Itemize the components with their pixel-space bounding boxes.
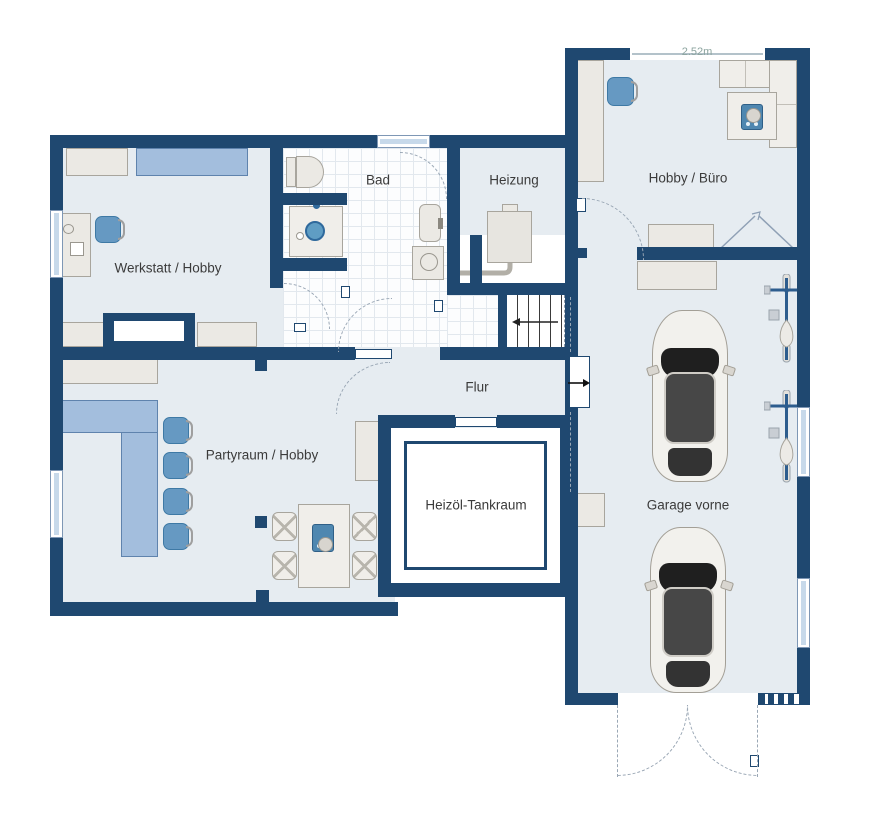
garage-sideboard bbox=[637, 261, 717, 290]
window-glass bbox=[801, 581, 806, 645]
window-glass bbox=[54, 213, 59, 275]
wall-werkstatt-bad bbox=[270, 148, 283, 288]
room-label-flur: Flur bbox=[465, 380, 488, 395]
wall-shower-bottom bbox=[283, 258, 347, 271]
wall-left-exterior bbox=[50, 135, 63, 615]
car-front bbox=[652, 310, 728, 486]
garage-door-dash bbox=[757, 705, 759, 777]
wall-bad-heizung bbox=[447, 135, 460, 295]
wall-stairs-left bbox=[498, 295, 507, 347]
wall-hobby-garage bbox=[637, 247, 797, 260]
window-glass bbox=[801, 410, 806, 474]
wall-top-left-wing bbox=[50, 135, 578, 148]
car-rear bbox=[650, 527, 726, 697]
office-chair bbox=[607, 77, 634, 106]
counter-right bbox=[197, 322, 257, 347]
gate-tick bbox=[788, 694, 794, 704]
window-glass bbox=[54, 473, 59, 535]
pillar bbox=[255, 516, 267, 528]
double-door-icon bbox=[716, 206, 798, 250]
garage-door-opening bbox=[618, 693, 758, 705]
wall-landing-bottom bbox=[447, 283, 578, 295]
car-roof bbox=[664, 372, 716, 444]
sink-faucet bbox=[438, 218, 443, 229]
door-marker bbox=[434, 300, 443, 312]
werkstatt-bench bbox=[136, 148, 248, 176]
car-roof bbox=[662, 587, 714, 657]
hatch-window bbox=[114, 321, 184, 341]
garage-door-arc bbox=[687, 705, 758, 776]
open-passage-dash bbox=[570, 412, 572, 492]
room-label-bad: Bad bbox=[366, 173, 390, 188]
room-label-hobby-buero: Hobby / Büro bbox=[649, 171, 728, 186]
wall-bottom-tankraum bbox=[378, 583, 578, 597]
workbench bbox=[66, 148, 128, 176]
dining-chair bbox=[352, 512, 377, 541]
bar-horizontal bbox=[62, 400, 158, 433]
pillar bbox=[255, 358, 267, 371]
shower-drain bbox=[305, 221, 325, 241]
door-marker bbox=[341, 286, 350, 298]
garage-door-dash bbox=[617, 705, 619, 777]
gate-tick bbox=[768, 694, 774, 704]
dining-chair bbox=[272, 512, 297, 541]
floorplan-canvas: Werkstatt / Hobby Bad Heizung Hobby / Bü… bbox=[0, 0, 870, 830]
shower-knob bbox=[296, 232, 304, 240]
room-label-werkstatt: Werkstatt / Hobby bbox=[114, 261, 221, 276]
coffee-table-tray bbox=[741, 104, 763, 130]
car-rear-window bbox=[668, 448, 712, 476]
door-leaf-tankraum bbox=[455, 417, 497, 427]
dining-chair bbox=[352, 551, 377, 580]
window-glass bbox=[380, 139, 427, 144]
dining-chair bbox=[272, 551, 297, 580]
wall-bottom-partyraum bbox=[50, 602, 398, 616]
table-grill bbox=[312, 524, 334, 552]
wall-tankraum-right bbox=[560, 415, 578, 597]
counter-left bbox=[62, 322, 104, 347]
stairs-direction-arrow bbox=[508, 315, 562, 329]
gate-tick bbox=[778, 694, 784, 704]
pillar bbox=[256, 590, 269, 603]
toilet-tank bbox=[286, 157, 296, 187]
hobby-sideboard bbox=[648, 224, 714, 248]
wall-flur-top-right bbox=[440, 347, 578, 360]
wall-shower-top bbox=[283, 193, 347, 205]
boiler bbox=[487, 211, 532, 263]
desk-item-round bbox=[63, 224, 74, 234]
garage-cabinet bbox=[577, 493, 605, 527]
open-passage-dash bbox=[570, 297, 572, 352]
wall-partyraum-top bbox=[50, 347, 355, 360]
washing-machine-door bbox=[420, 253, 438, 271]
entry-arrow-icon bbox=[566, 376, 592, 390]
garage-door-arc bbox=[617, 705, 688, 776]
wall-landing-stub bbox=[470, 235, 482, 283]
car-rear-window bbox=[666, 661, 710, 687]
party-counter bbox=[62, 358, 158, 384]
hall-tile-floor bbox=[447, 295, 498, 347]
dimension-label: 2.52m bbox=[682, 46, 713, 58]
room-label-garage: Garage vorne bbox=[647, 498, 730, 513]
desk-item-square bbox=[70, 242, 84, 256]
room-label-heizung: Heizung bbox=[489, 173, 539, 188]
room-label-tankraum: Heizöl-Tankraum bbox=[425, 498, 526, 513]
room-label-partyraum: Partyraum / Hobby bbox=[206, 448, 319, 463]
wall-tankraum-left bbox=[378, 415, 391, 597]
